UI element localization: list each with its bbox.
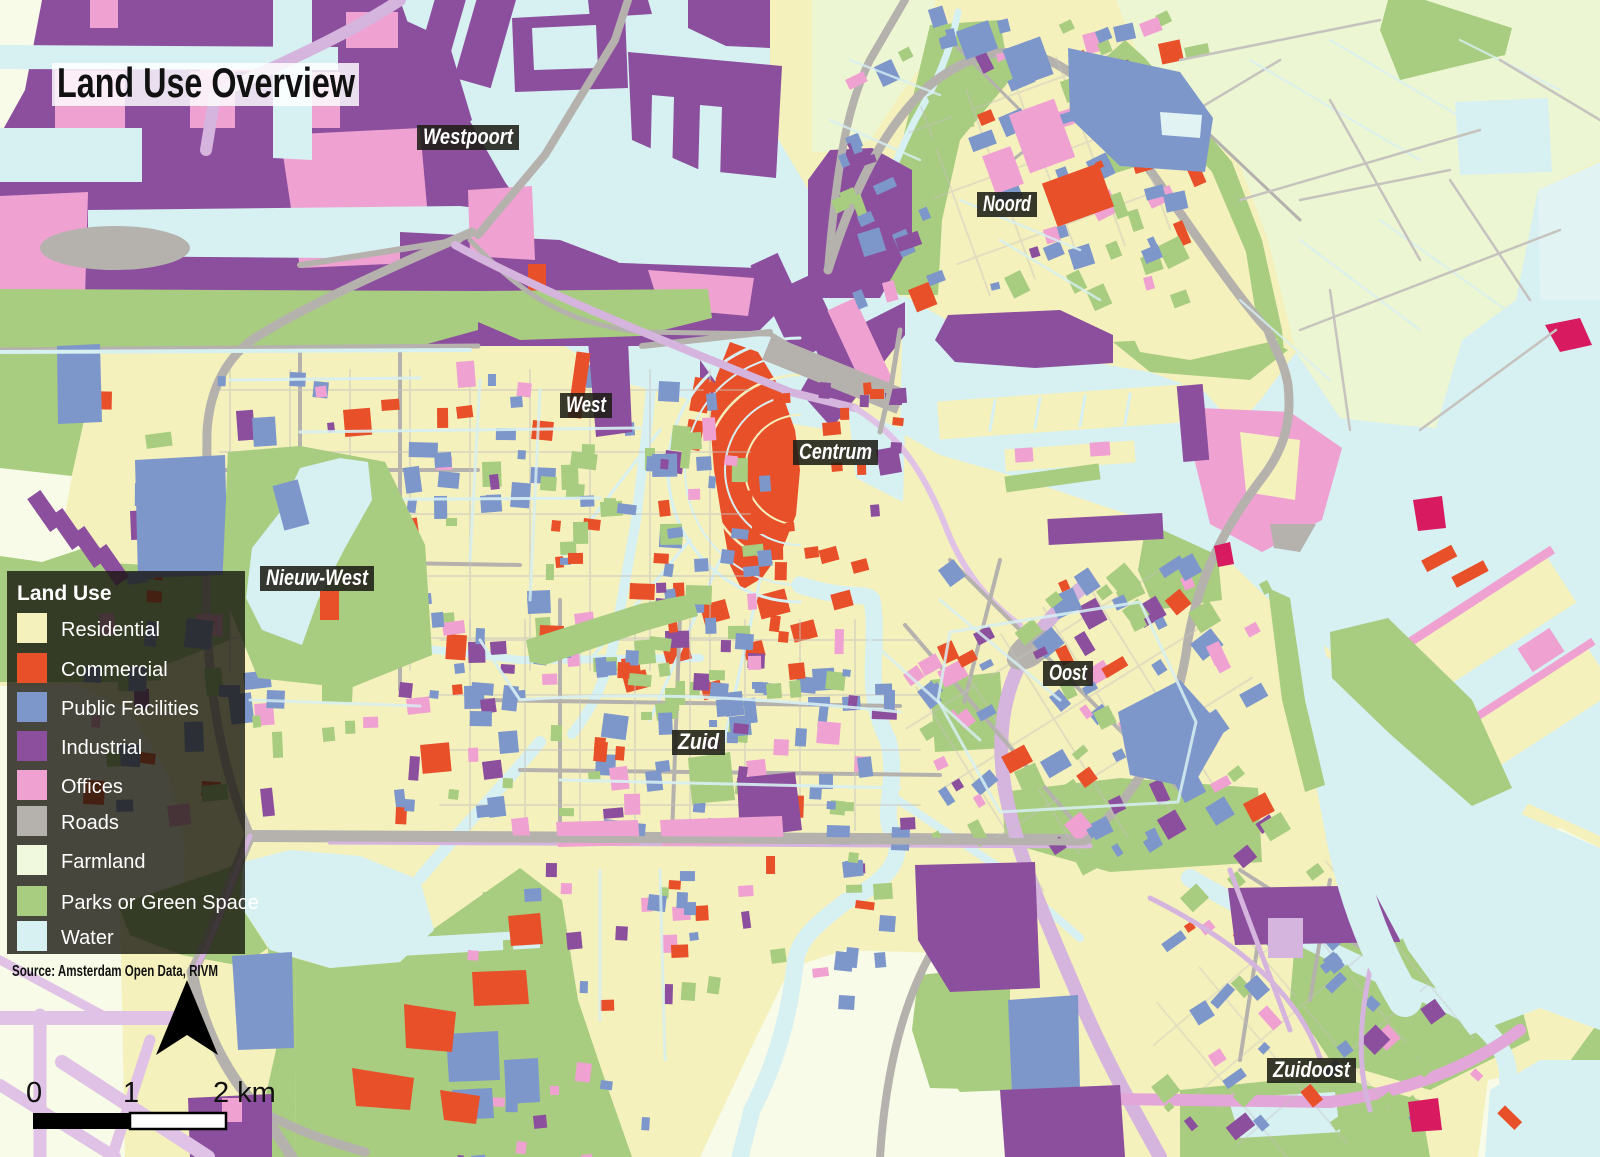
svg-text:Parks or Green Space: Parks or Green Space <box>61 892 259 914</box>
svg-text:Zuid: Zuid <box>677 729 719 754</box>
svg-text:2 km: 2 km <box>213 1077 276 1109</box>
svg-text:Residential: Residential <box>61 619 160 641</box>
svg-text:Industrial: Industrial <box>61 737 142 759</box>
svg-text:Water: Water <box>61 927 114 949</box>
svg-text:0: 0 <box>26 1077 42 1109</box>
svg-text:Westpoort: Westpoort <box>423 124 514 149</box>
svg-text:West: West <box>566 392 607 417</box>
svg-text:Nieuw-West: Nieuw-West <box>266 565 369 590</box>
svg-text:Oost: Oost <box>1049 660 1088 685</box>
svg-text:Land Use Overview: Land Use Overview <box>57 59 355 106</box>
svg-text:Noord: Noord <box>983 191 1031 216</box>
svg-text:Commercial: Commercial <box>61 659 168 681</box>
svg-text:Offices: Offices <box>61 776 123 798</box>
svg-text:Zuidoost: Zuidoost <box>1272 1057 1351 1082</box>
svg-text:Farmland: Farmland <box>61 851 145 873</box>
svg-text:Centrum: Centrum <box>799 439 872 464</box>
svg-text:1: 1 <box>123 1077 139 1109</box>
svg-text:Roads: Roads <box>61 812 119 834</box>
svg-text:Land Use: Land Use <box>17 582 112 605</box>
svg-text:Public Facilities: Public Facilities <box>61 698 199 720</box>
svg-text:Source: Amsterdam Open Data, R: Source: Amsterdam Open Data, RIVM <box>12 963 218 980</box>
